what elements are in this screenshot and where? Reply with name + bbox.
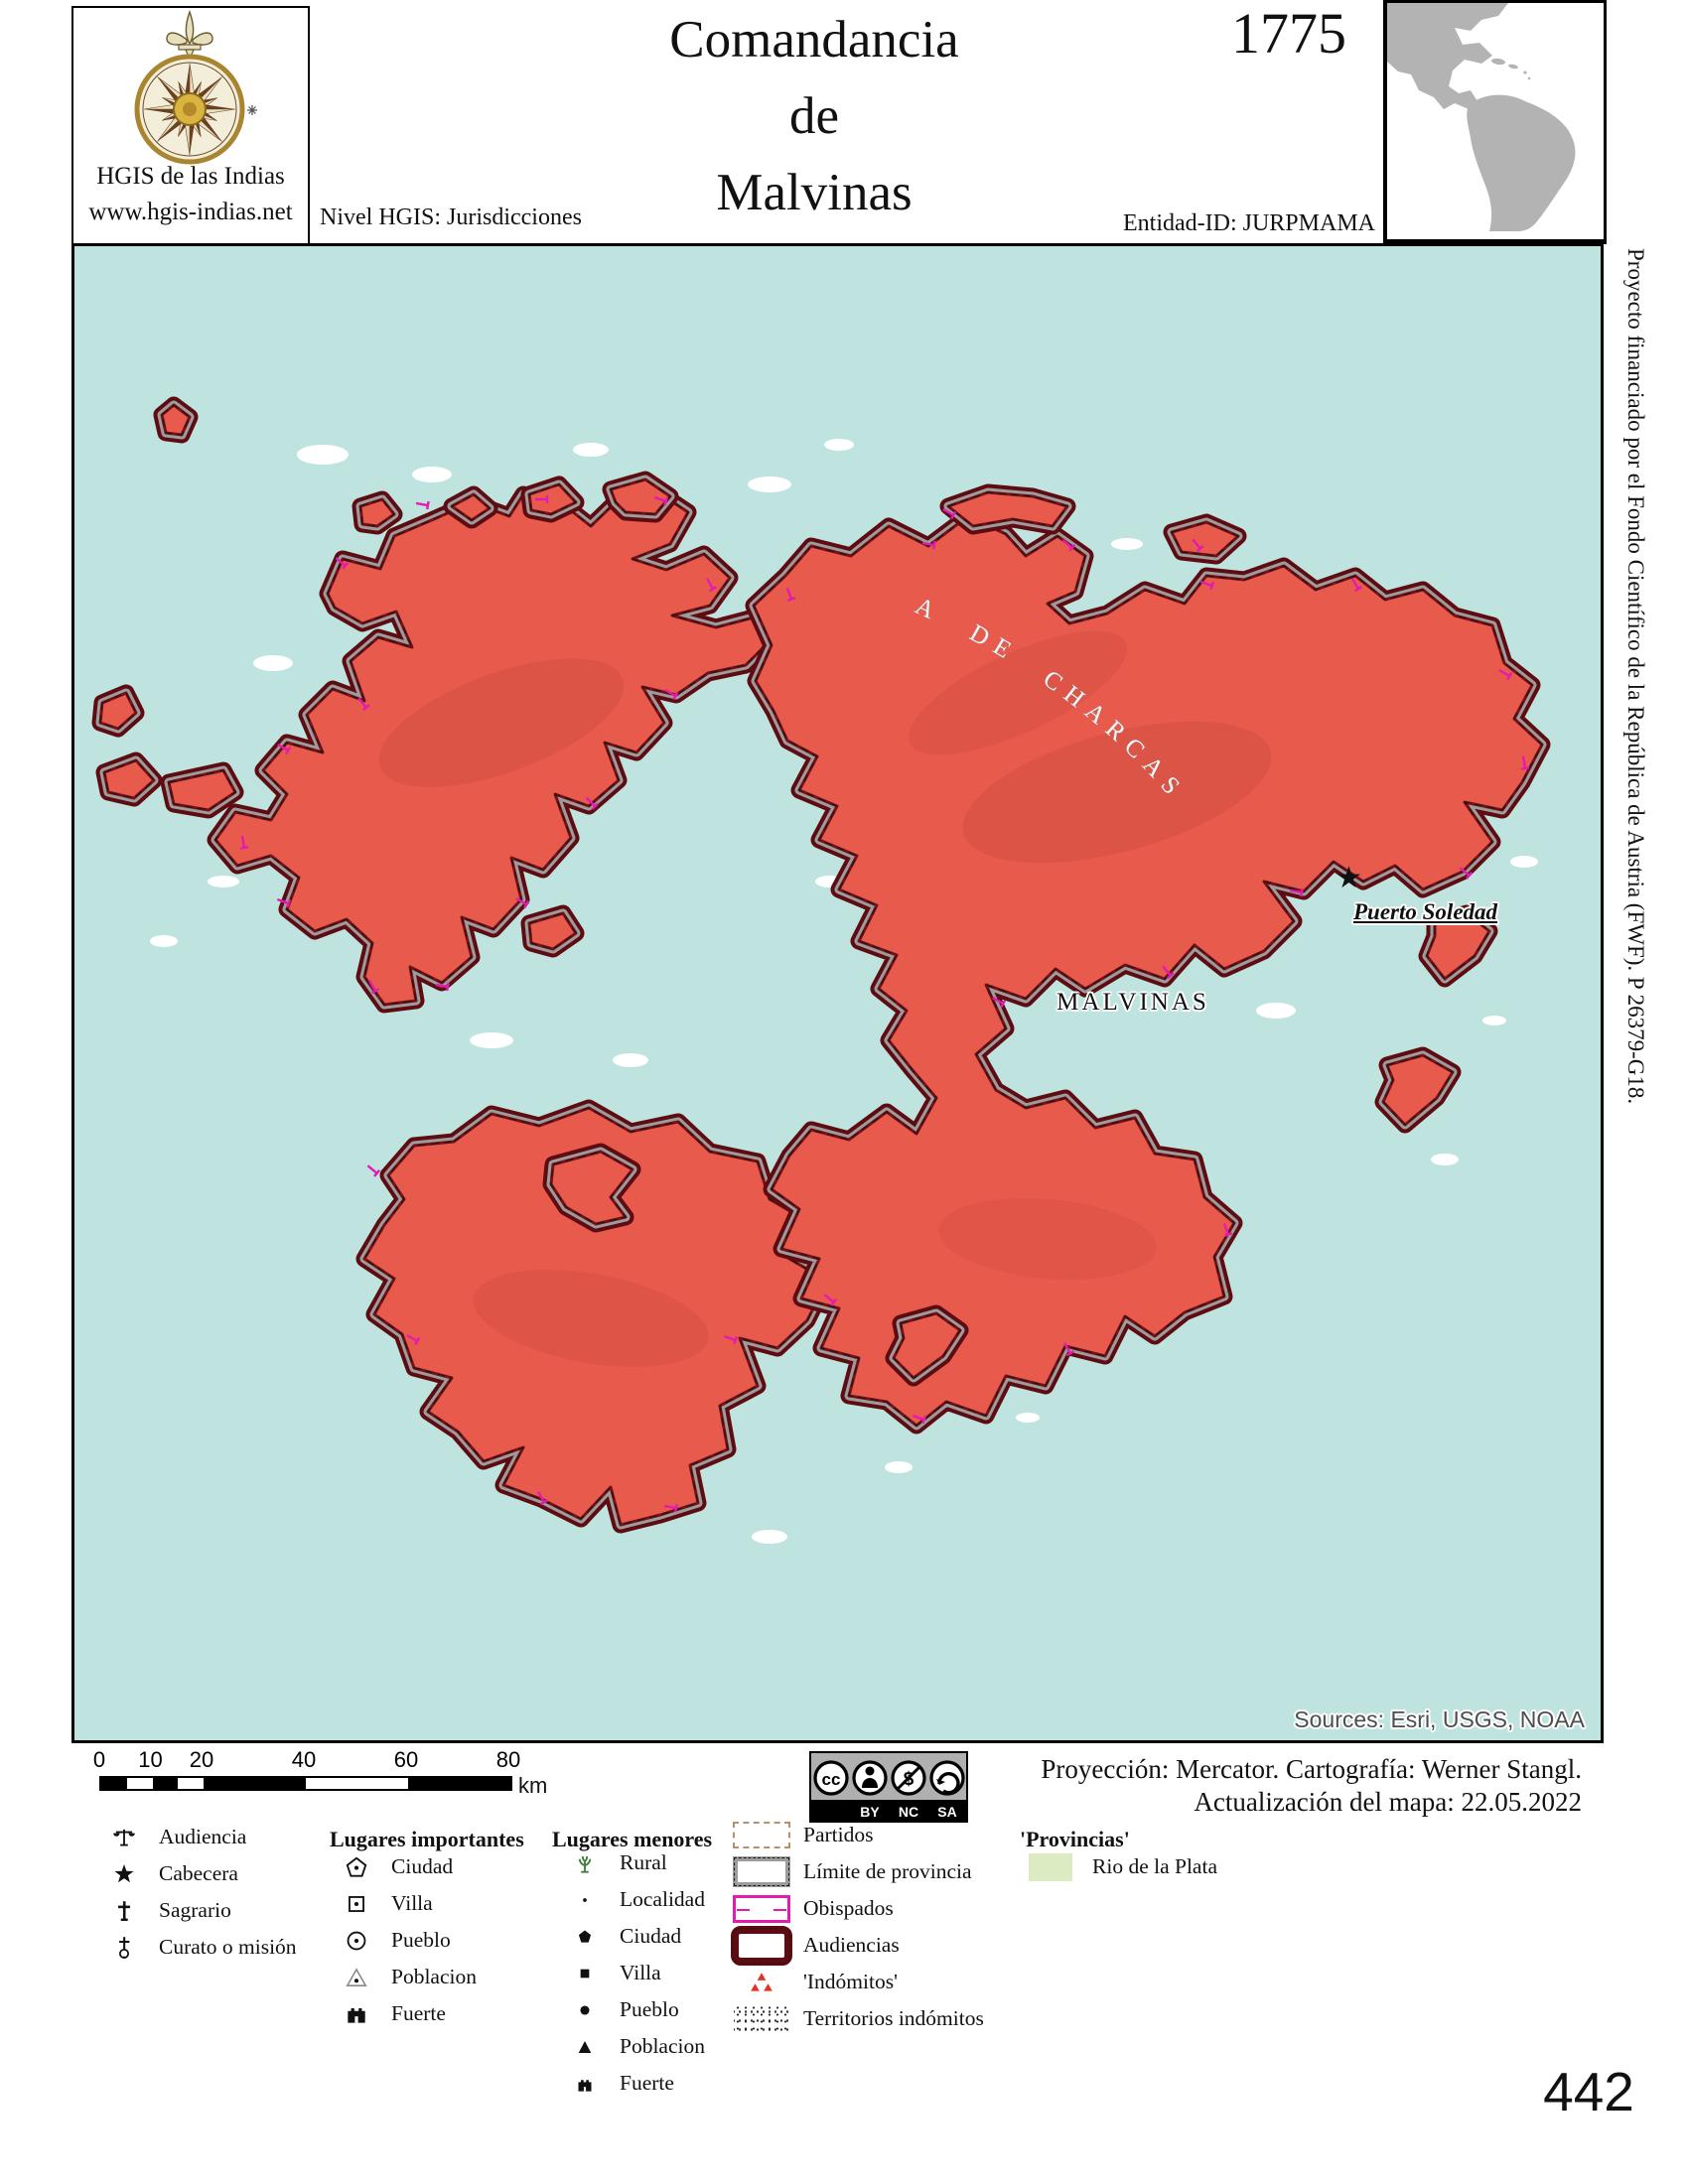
legend-label: Pueblo xyxy=(391,1928,451,1953)
legend-label: Poblacion xyxy=(620,2034,705,2059)
scale-segment xyxy=(101,1778,127,1789)
legend-row: Curato o misión xyxy=(111,1929,297,1966)
legend-row: Audiencias xyxy=(731,1927,984,1964)
audiencias-swatch-box xyxy=(731,1926,792,1966)
legend-label: Ciudad xyxy=(391,1854,453,1879)
legend-label: Rio de la Plata xyxy=(1092,1854,1217,1879)
provincia-swatch xyxy=(731,1856,792,1887)
legend-row: Poblacion xyxy=(344,1959,477,1995)
legend-row: Poblacion xyxy=(572,2028,705,2065)
logo-box: HGIS de las Indias www.hgis-indias.net xyxy=(71,6,310,246)
legend-label: Sagrario xyxy=(159,1898,231,1923)
rio-swatch-box xyxy=(1029,1853,1072,1881)
legend-row: Localidad xyxy=(572,1881,705,1918)
legend-label: Territorios indómitos xyxy=(803,2006,984,2031)
territorios-swatch-box xyxy=(734,2004,789,2034)
legend-label: Partidos xyxy=(803,1823,873,1847)
legend-row: Fuerte xyxy=(572,2065,705,2102)
legend-row: Fuerte xyxy=(344,1995,477,2032)
scale-segment xyxy=(127,1778,153,1789)
legend-row: Ciudad xyxy=(344,1848,477,1885)
compass-rose-icon xyxy=(107,10,272,165)
circle-dot-icon xyxy=(344,1928,369,1954)
credit-line-1: Proyección: Mercator. Cartografía: Werne… xyxy=(983,1753,1582,1786)
castle-icon xyxy=(344,2001,369,2027)
legend-label: Ciudad xyxy=(620,1924,681,1949)
cc-license-badge: cc $ BY NC SA xyxy=(809,1751,968,1823)
legend-row: Villa xyxy=(344,1885,477,1922)
star-icon xyxy=(111,1861,137,1887)
partidos-swatch-box xyxy=(733,1822,790,1848)
legend-row: Audiencia xyxy=(111,1819,297,1855)
page-number: 442 xyxy=(1529,2060,1648,2123)
legend-label: Fuerte xyxy=(620,2071,674,2096)
scale-bar: 0 10 20 40 60 80 km xyxy=(84,1747,561,1803)
legend-label: Cabecera xyxy=(159,1861,238,1886)
legend-label: Poblacion xyxy=(391,1965,477,1989)
legend-important-column: CiudadVillaPuebloPoblacionFuerte xyxy=(344,1848,477,2032)
scale-segment xyxy=(153,1778,179,1789)
sparkle-icon xyxy=(247,105,257,115)
logo-title: HGIS de las Indias xyxy=(73,163,308,191)
legend-boundaries-column: PartidosLímite de provinciaObispadosAudi… xyxy=(731,1817,984,2037)
legend-minor-column: RuralLocalidadCiudadVillaPuebloPoblacion… xyxy=(572,1844,705,2102)
scales-icon xyxy=(111,1825,137,1850)
legend-label: Obispados xyxy=(803,1896,894,1921)
legend-row: Territorios indómitos xyxy=(731,2000,984,2037)
legend-label: Villa xyxy=(391,1891,433,1916)
entity-id-label: Entidad-ID: JURPMAMA xyxy=(1072,210,1375,237)
legend-row: Límite de provincia xyxy=(731,1853,984,1890)
indomitos-icon xyxy=(731,1970,792,1995)
map-sheet-page: HGIS de las Indias www.hgis-indias.net N… xyxy=(0,0,1688,2184)
scale-segment xyxy=(204,1778,306,1789)
dot-icon xyxy=(572,1887,598,1913)
legend-row: Villa xyxy=(572,1955,705,1991)
territorios-swatch xyxy=(731,2004,792,2034)
legend-row: Ciudad xyxy=(572,1918,705,1955)
puerto-soledad-label: Puerto Soledad xyxy=(1353,899,1497,925)
legend-label: Rural xyxy=(620,1850,667,1875)
malvinas-map-svg: A DE CHARCAS xyxy=(74,246,1601,1740)
cabecera-star-icon: ★ xyxy=(1336,864,1362,893)
legend-label: Villa xyxy=(620,1961,661,1985)
audiencias-swatch xyxy=(731,1926,792,1966)
pentagon-fill-icon xyxy=(572,1924,598,1950)
legend-row: Partidos xyxy=(731,1817,984,1853)
legend-label: Audiencias xyxy=(803,1933,900,1958)
triangle-fill-icon xyxy=(572,2034,598,2060)
legend-label: Localidad xyxy=(620,1887,705,1912)
legend-label: Curato o misión xyxy=(159,1935,297,1960)
legend-label: 'Indómitos' xyxy=(803,1970,898,1994)
map-year: 1775 xyxy=(1231,0,1380,67)
legend-label: Audiencia xyxy=(159,1825,246,1849)
page-title: Comandancia de Malvinas xyxy=(536,2,1092,231)
americas-inset-map xyxy=(1383,0,1607,244)
islands-layer xyxy=(100,405,1542,1525)
scale-tick: 0 xyxy=(79,1747,119,1773)
legend-row: Pueblo xyxy=(572,1991,705,2028)
scale-segment xyxy=(178,1778,204,1789)
legend-row: Cabecera xyxy=(111,1855,297,1892)
cartography-credits: Proyección: Mercator. Cartografía: Werne… xyxy=(983,1753,1582,1819)
legend-label: Pueblo xyxy=(620,1997,679,2022)
title-line-3: Malvinas xyxy=(536,155,1092,231)
castle-small-icon xyxy=(572,2071,598,2097)
legend-label: Límite de provincia xyxy=(803,1859,972,1884)
title-line-1: Comandancia xyxy=(536,2,1092,78)
legend-row: Obispados xyxy=(731,1890,984,1927)
rio-swatch xyxy=(1020,1853,1081,1881)
title-line-2: de xyxy=(536,78,1092,155)
square-fill-icon xyxy=(572,1961,598,1986)
sources-credit: Sources: Esri, USGS, NOAA xyxy=(1294,1706,1585,1733)
scale-tick: 80 xyxy=(489,1747,528,1773)
obispados-swatch xyxy=(731,1895,792,1923)
legend-provincias-column: Rio de la Plata xyxy=(1020,1848,1217,1885)
scale-unit-label: km xyxy=(518,1773,547,1799)
legend-row: Sagrario xyxy=(111,1892,297,1929)
credit-line-2: Actualización del mapa: 22.05.2022 xyxy=(983,1786,1582,1819)
funding-note: Proyecto financiado por el Fondo Científ… xyxy=(1622,248,1648,1777)
scale-tick: 40 xyxy=(284,1747,324,1773)
map-canvas: A DE CHARCAS MALVINAS ★ Puerto Soledad S… xyxy=(71,243,1604,1743)
americas-silhouette xyxy=(1387,3,1597,231)
legend-label: Fuerte xyxy=(391,2001,446,2026)
cross-icon xyxy=(111,1898,137,1924)
scale-bar-segments xyxy=(99,1776,512,1791)
partidos-swatch xyxy=(731,1822,792,1848)
scale-segment xyxy=(306,1778,408,1789)
legend-row: Rural xyxy=(572,1844,705,1881)
scale-tick: 10 xyxy=(131,1747,171,1773)
malvinas-label: MALVINAS xyxy=(1029,989,1237,1017)
circle-fill-icon xyxy=(572,1997,598,2023)
scale-segment xyxy=(408,1778,510,1789)
legend-row: 'Indómitos' xyxy=(731,1964,984,2000)
legend-row: Pueblo xyxy=(344,1922,477,1959)
square-dot-icon xyxy=(344,1891,369,1917)
mission-icon xyxy=(111,1935,137,1961)
scale-tick: 60 xyxy=(386,1747,426,1773)
triangle-dot-icon xyxy=(344,1965,369,1990)
obispados-swatch-box xyxy=(733,1895,790,1923)
scale-tick: 20 xyxy=(182,1747,221,1773)
provincia-swatch-box xyxy=(733,1856,790,1887)
legend-row: Rio de la Plata xyxy=(1020,1848,1217,1885)
pentagon-dot-icon xyxy=(344,1854,369,1880)
cc-icon: cc xyxy=(822,1770,841,1789)
rural-icon xyxy=(572,1850,598,1876)
cc-by-nc-sa-icon: cc $ BY NC SA xyxy=(809,1751,968,1823)
logo-url: www.hgis-indias.net xyxy=(73,199,308,226)
legend-general-column: AudienciaCabeceraSagrarioCurato o misión xyxy=(111,1819,297,1966)
